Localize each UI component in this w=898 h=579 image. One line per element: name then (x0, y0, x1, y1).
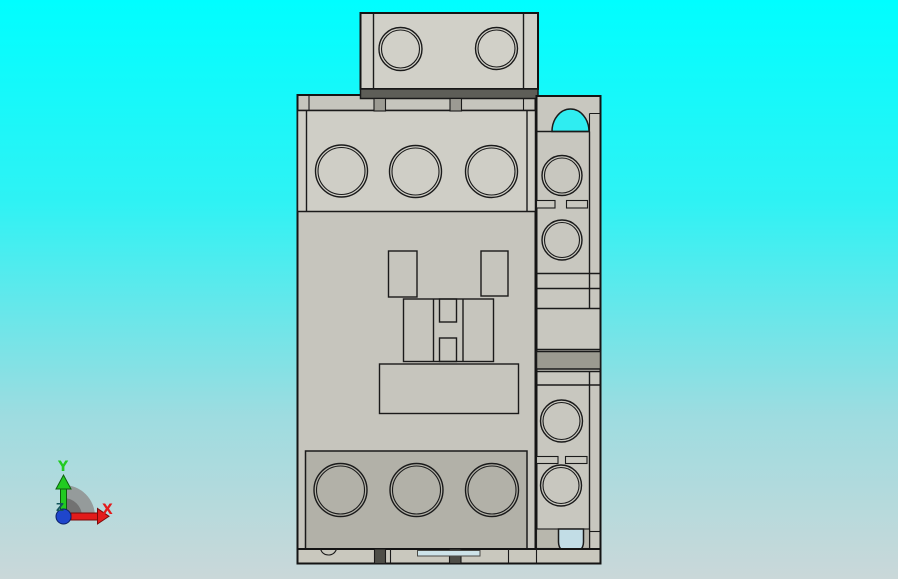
cad-viewport[interactable]: Y X Z (0, 0, 898, 579)
mounting-base[interactable] (298, 549, 601, 564)
side-terminal-column[interactable] (537, 96, 601, 564)
divider-tab-b1 (537, 457, 559, 464)
aux-contact-block[interactable] (361, 13, 539, 111)
base-slot (418, 551, 481, 557)
z-axis-label: Z (56, 501, 64, 514)
x-axis-label: X (102, 502, 113, 518)
main-body[interactable] (298, 95, 536, 564)
aux-block-dark-band (361, 89, 539, 99)
divider-tab-b2 (566, 457, 588, 464)
contactor-model[interactable] (298, 13, 601, 564)
divider-tab-a1 (537, 201, 556, 209)
side-column-face[interactable] (537, 96, 601, 564)
mount-tab-left (374, 99, 386, 112)
y-axis-label: Y (57, 459, 69, 475)
mount-tab-right (450, 99, 462, 112)
aux-block-face[interactable] (361, 13, 539, 89)
divider-tab-a2 (567, 201, 588, 209)
column-dark-band (537, 352, 601, 370)
din-clip-left[interactable] (375, 549, 386, 564)
